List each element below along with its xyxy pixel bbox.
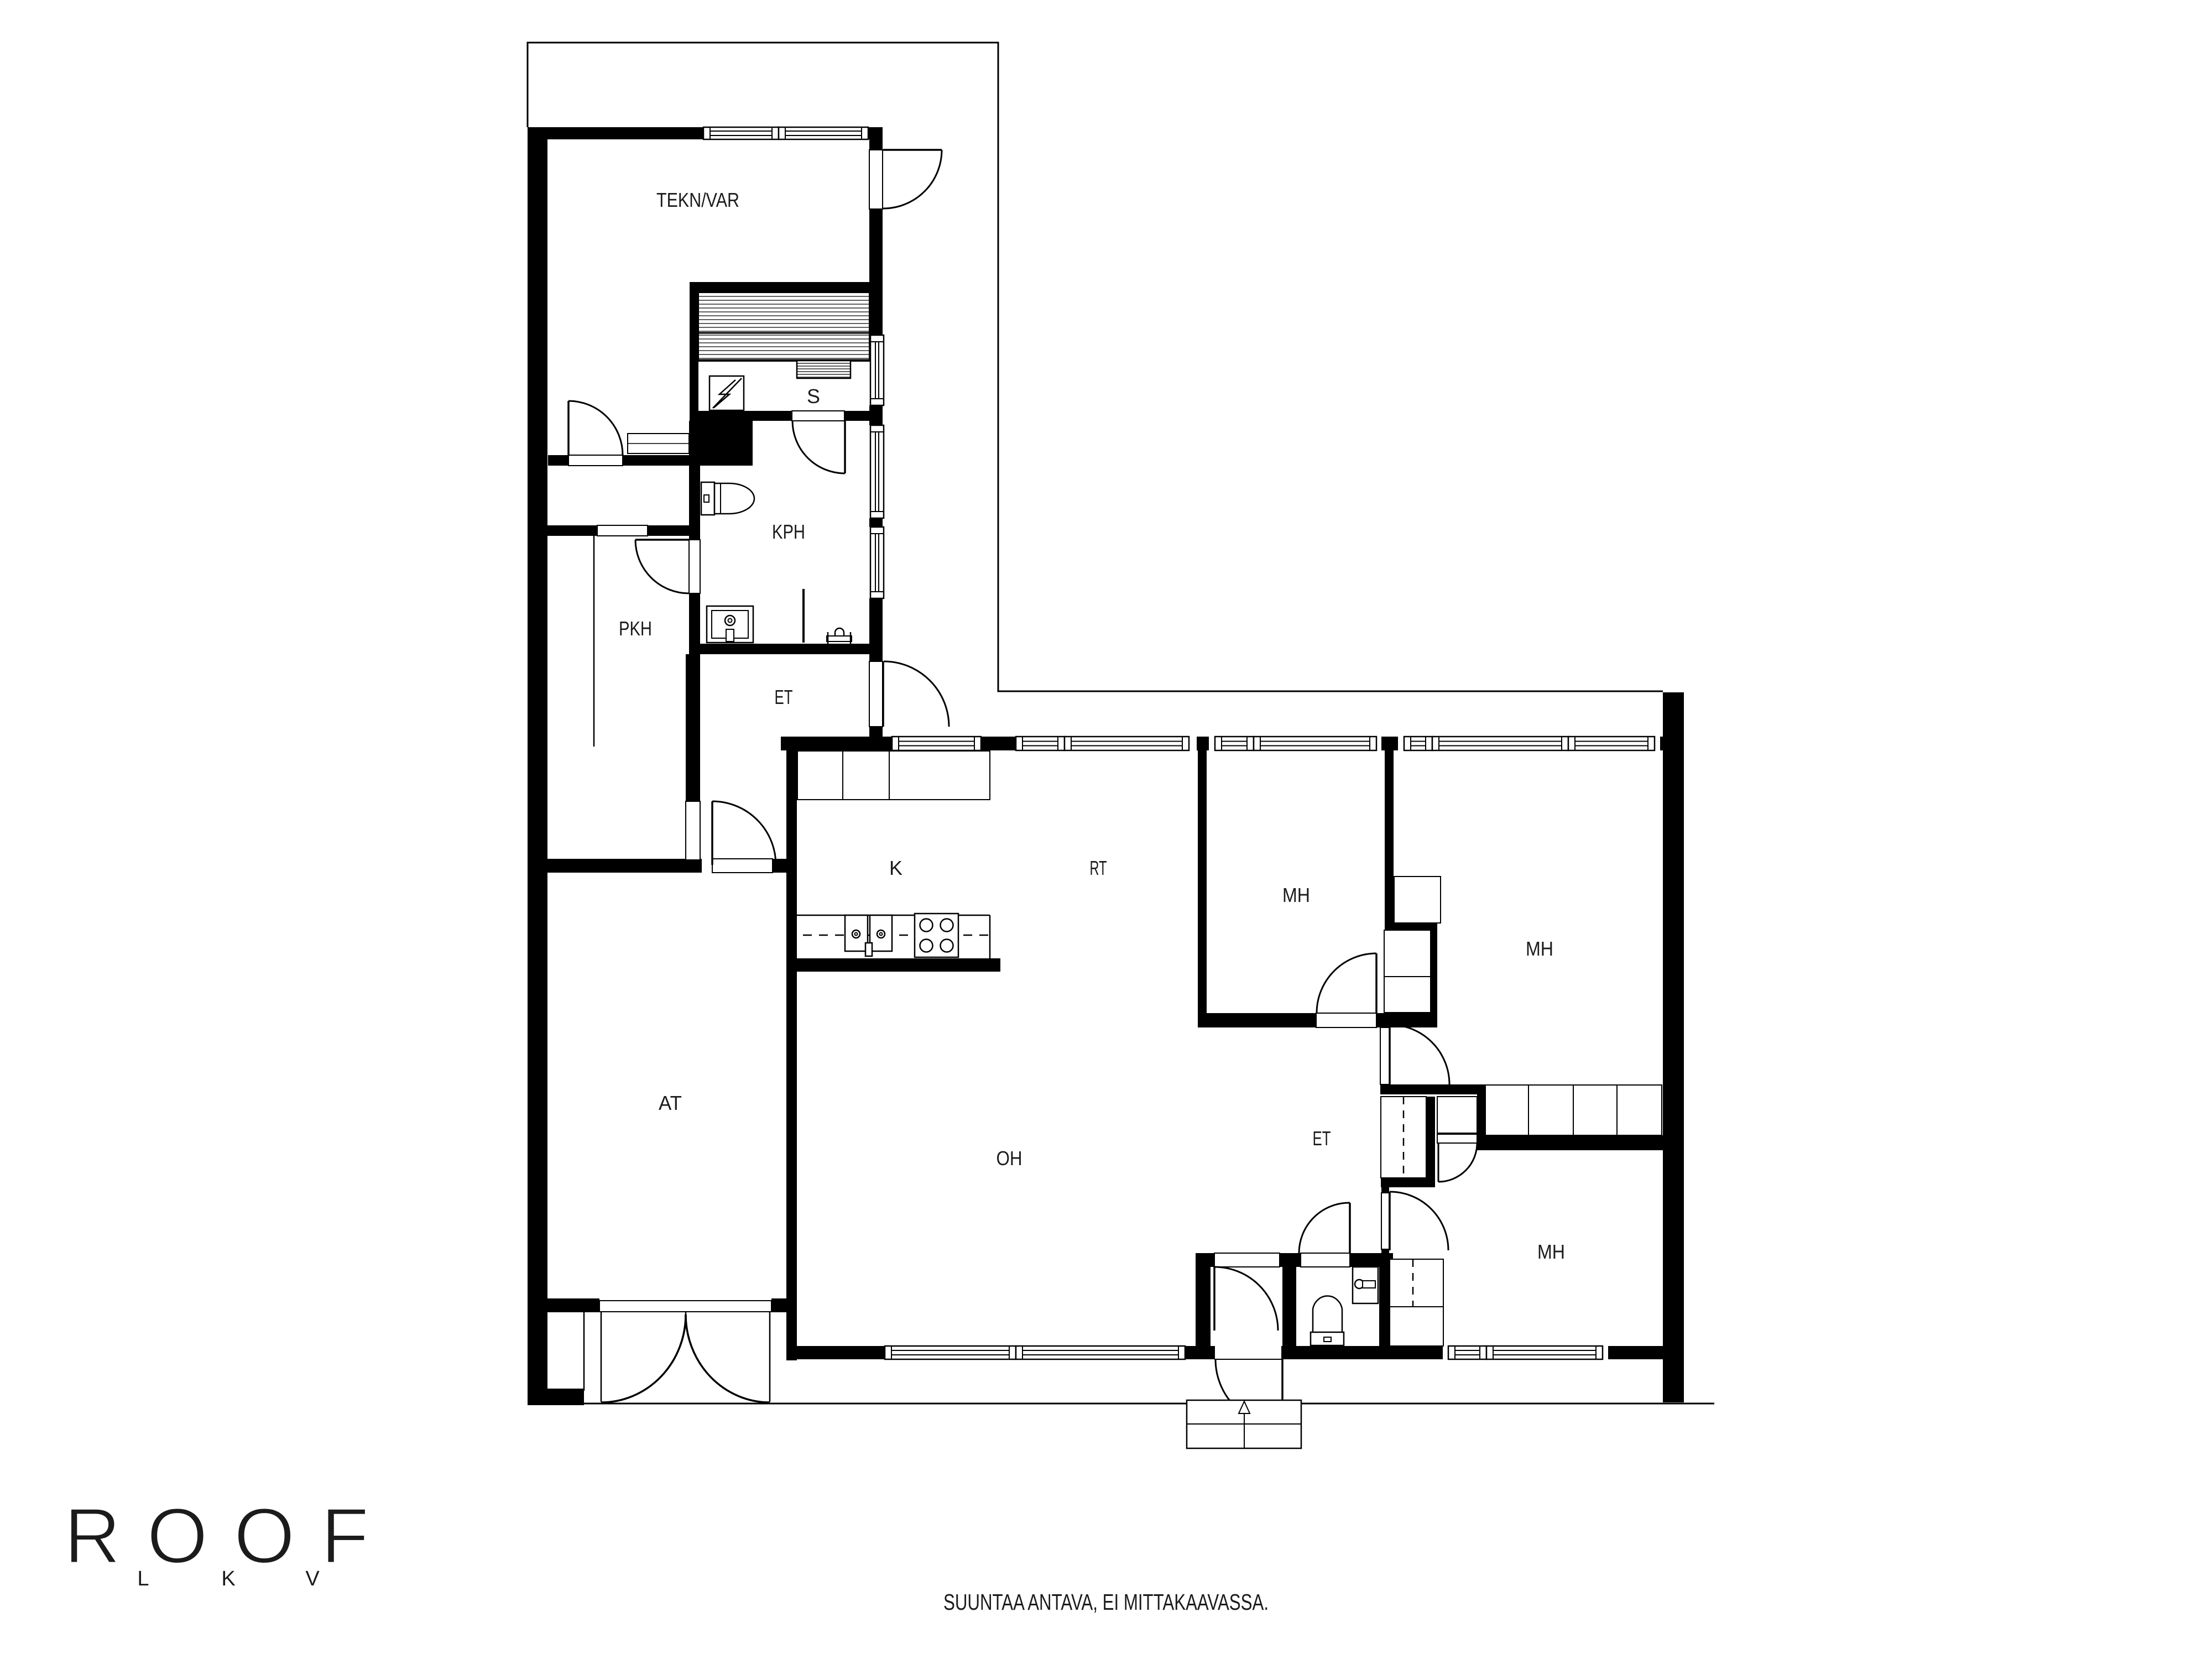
svg-text:RT: RT	[1090, 857, 1107, 879]
svg-text:PKH: PKH	[619, 617, 652, 640]
svg-text:K: K	[889, 857, 902, 879]
svg-text:ET: ET	[775, 686, 793, 708]
svg-text:K: K	[221, 1567, 235, 1590]
svg-text:TEKN/VAR: TEKN/VAR	[656, 189, 739, 211]
svg-text:S: S	[807, 385, 820, 408]
svg-text:OH: OH	[997, 1147, 1022, 1170]
svg-text:KPH: KPH	[772, 520, 805, 543]
svg-text:SUUNTAA ANTAVA, EI MITTAKAAVAS: SUUNTAA ANTAVA, EI MITTAKAAVASSA.	[943, 1589, 1269, 1615]
svg-text:ET: ET	[1313, 1127, 1331, 1150]
svg-text:V: V	[305, 1567, 320, 1590]
svg-text:MH: MH	[1526, 937, 1553, 960]
svg-text:AT: AT	[659, 1092, 682, 1114]
svg-text:L: L	[137, 1567, 149, 1590]
svg-text:MH: MH	[1282, 884, 1310, 906]
svg-text:MH: MH	[1537, 1240, 1565, 1263]
